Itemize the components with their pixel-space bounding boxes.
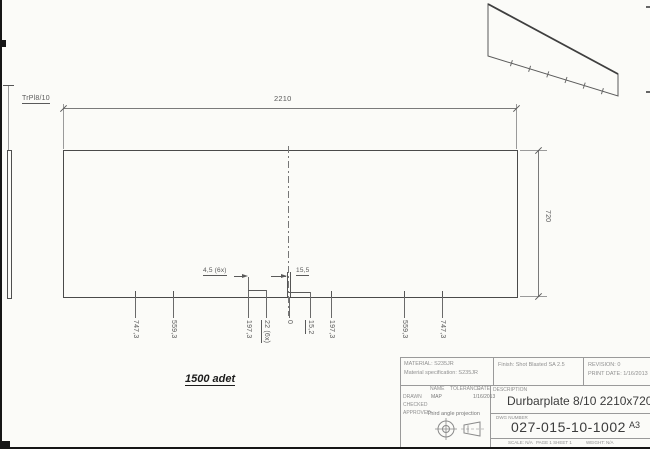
dim-width-value: 2210 xyxy=(274,94,292,103)
ordinate-leader xyxy=(266,290,267,318)
vertical-centerline xyxy=(288,146,289,316)
dim-height-extension-top xyxy=(520,150,547,151)
ordinate-label: 559,3 xyxy=(401,320,408,339)
title-block-border xyxy=(583,357,584,385)
side-view-label: TrPl8/10 xyxy=(22,95,50,104)
title-block-border xyxy=(493,357,494,385)
description-label: DESCRIPTION xyxy=(493,387,527,393)
title-block-border xyxy=(490,413,650,414)
drawn-date: 1/16/2013 xyxy=(473,394,495,400)
dim-height-extension-bottom xyxy=(520,296,547,297)
dwg-number: 027-015-10-1002 xyxy=(511,419,626,435)
row-drawn: DRAWN xyxy=(403,394,422,400)
arrowhead xyxy=(281,274,287,278)
scan-artifact xyxy=(0,40,6,47)
col-header-name: NAME xyxy=(430,386,444,392)
dim-height-line xyxy=(538,150,539,297)
ordinate-leader xyxy=(331,297,332,318)
sheet-size: A3 xyxy=(629,420,640,430)
ordinate-leader xyxy=(310,292,311,318)
pitch-dim-line xyxy=(248,290,267,291)
material-spec: Material specification: S235JR xyxy=(404,370,478,376)
ordinate-label: 22 (6x) xyxy=(261,320,270,343)
side-view-extension-line xyxy=(8,86,9,150)
dim-width-line xyxy=(63,108,517,109)
ordinate-leader xyxy=(289,297,290,318)
isometric-view xyxy=(480,0,650,105)
title-block-border xyxy=(400,357,650,358)
row-checked: CHECKED xyxy=(403,402,427,408)
ordinate-label: 559,3 xyxy=(170,320,177,339)
ordinate-leader xyxy=(173,297,174,318)
scan-artifact xyxy=(0,441,10,448)
scale-note: SCALE: N/A xyxy=(508,440,533,445)
title-block-border xyxy=(400,357,401,447)
center-slot-edge xyxy=(287,272,288,297)
ordinate-label: 747,3 xyxy=(132,320,139,339)
side-view-plate xyxy=(7,150,12,299)
pitch-dim-line xyxy=(289,292,311,293)
quantity-note: 1500 adet xyxy=(185,373,235,386)
dim-width-extension-right xyxy=(516,104,517,149)
dim-width-extension-left xyxy=(63,104,64,149)
slot-width-label: 15,5 xyxy=(296,267,309,276)
ordinate-label: 0 xyxy=(286,320,293,324)
center-slot-edge xyxy=(290,272,291,297)
ordinate-leader xyxy=(135,297,136,318)
ordinate-label: 197,3 xyxy=(245,320,252,339)
third-angle-front-view-icon xyxy=(432,418,488,442)
revision-label: REVISION: 0 xyxy=(588,362,620,368)
ordinate-label: 747,3 xyxy=(439,320,446,339)
drawn-name: MAP xyxy=(431,394,442,400)
weight-note: WEIGHT: N/A xyxy=(586,440,614,445)
ordinate-label: 197,3 xyxy=(328,320,335,339)
col-header-date: DATE xyxy=(477,386,490,392)
ordinate-leader xyxy=(404,297,405,318)
scan-artifact xyxy=(0,0,2,449)
drawing-title: Durbarplate 8/10 2210x720 xyxy=(507,394,650,408)
page-note: PAGE 1 SHEET 1 xyxy=(536,440,572,445)
ordinate-label: 15,2 xyxy=(305,320,314,334)
drawing-sheet: TrPl8/10 2210 720 4,5 (6x) 15,5 747,3 55… xyxy=(0,0,650,449)
finish-note: Finish: Shot Blasted SA 2.5 xyxy=(498,362,565,368)
print-date: PRINT DATE: 1/16/2013 xyxy=(588,371,648,377)
projection-note: Third angle projection xyxy=(427,411,480,417)
title-block-border xyxy=(490,438,650,439)
dim-height-value: 720 xyxy=(544,210,551,222)
col-header-tolerance: TOLERANCE xyxy=(450,386,480,392)
ordinate-leader xyxy=(442,297,443,318)
third-angle-side-view-icon xyxy=(461,422,484,436)
material-label: MATERIAL: S235JR xyxy=(404,361,454,367)
ordinate-leader xyxy=(248,277,249,318)
hole-dia-label: 4,5 (6x) xyxy=(203,267,227,276)
